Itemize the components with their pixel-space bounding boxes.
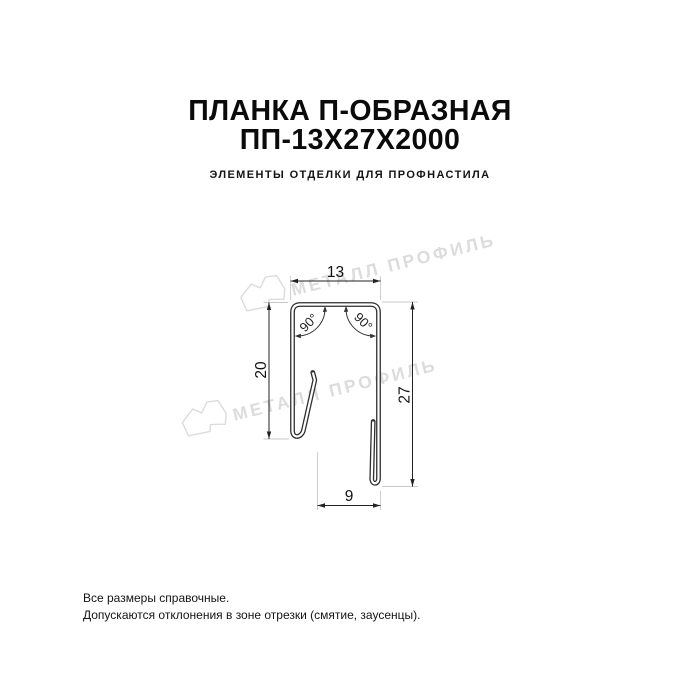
- dim-label-right: 27: [397, 386, 414, 403]
- watermark-text: МЕТАЛЛ ПРОФИЛЬ: [289, 230, 498, 300]
- product-drawing-page: ПЛАНКА П-ОБРАЗНАЯ ПП-13Х27Х2000 ЭЛЕМЕНТЫ…: [0, 0, 700, 700]
- metall-profil-logo-icon: [238, 273, 288, 312]
- angle-left-90: 90°: [295, 306, 327, 338]
- dim-label-bottom: 9: [345, 488, 354, 505]
- angle-label-right: 90°: [351, 309, 376, 334]
- arrowhead-down-icon: [267, 432, 271, 440]
- footer-note-line1: Все размеры справочные.: [83, 590, 420, 607]
- arrowhead-right-icon: [373, 503, 381, 507]
- arrowhead-up-icon: [410, 302, 414, 310]
- dimension-right-height: 27: [397, 302, 415, 487]
- arc-arrow-icon: [370, 334, 376, 338]
- arrowhead-right-icon: [373, 279, 381, 283]
- footer-note-line2: Допускаются отклонения в зоне отрезки (с…: [83, 607, 420, 624]
- angle-label-left: 90°: [296, 310, 321, 335]
- watermark-upper: МЕТАЛЛ ПРОФИЛЬ: [238, 221, 498, 313]
- angle-right-90: 90°: [344, 306, 376, 338]
- dimension-bottom-width: 9: [318, 488, 381, 508]
- arc-arrow-icon: [295, 334, 301, 338]
- arrowhead-left-icon: [318, 503, 326, 507]
- metall-profil-logo-icon: [179, 398, 229, 437]
- dim-label-left: 20: [253, 361, 270, 379]
- footer-notes: Все размеры справочные. Допускаются откл…: [83, 590, 420, 623]
- arrowhead-down-icon: [410, 479, 414, 487]
- dim-label-top: 13: [327, 264, 344, 281]
